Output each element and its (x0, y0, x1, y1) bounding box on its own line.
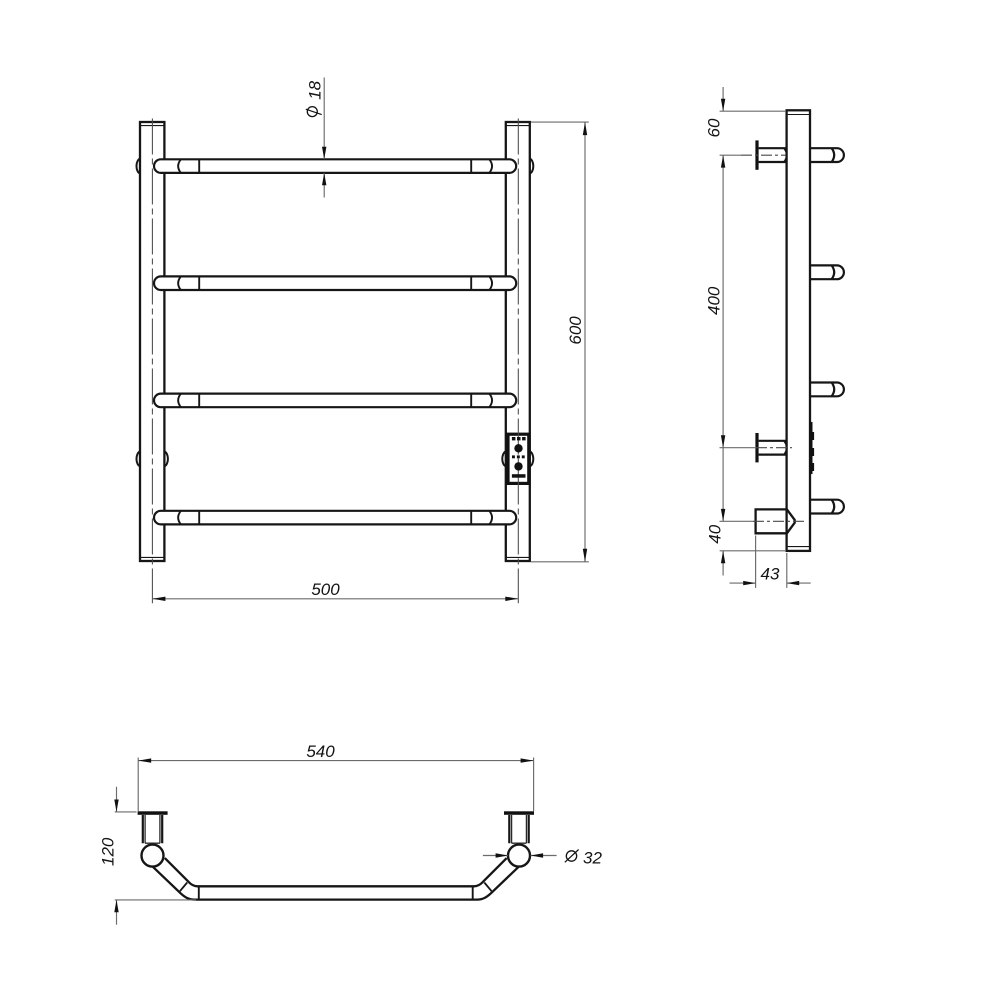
svg-text:40: 40 (706, 524, 725, 543)
svg-text:540: 540 (306, 742, 335, 761)
svg-text:120: 120 (98, 837, 117, 866)
svg-text:32: 32 (583, 848, 602, 867)
svg-text:500: 500 (311, 580, 340, 599)
svg-text:60: 60 (704, 118, 723, 137)
svg-text:400: 400 (705, 286, 724, 315)
svg-text:43: 43 (761, 565, 780, 584)
svg-text:18: 18 (306, 80, 325, 99)
svg-text:600: 600 (566, 316, 585, 345)
